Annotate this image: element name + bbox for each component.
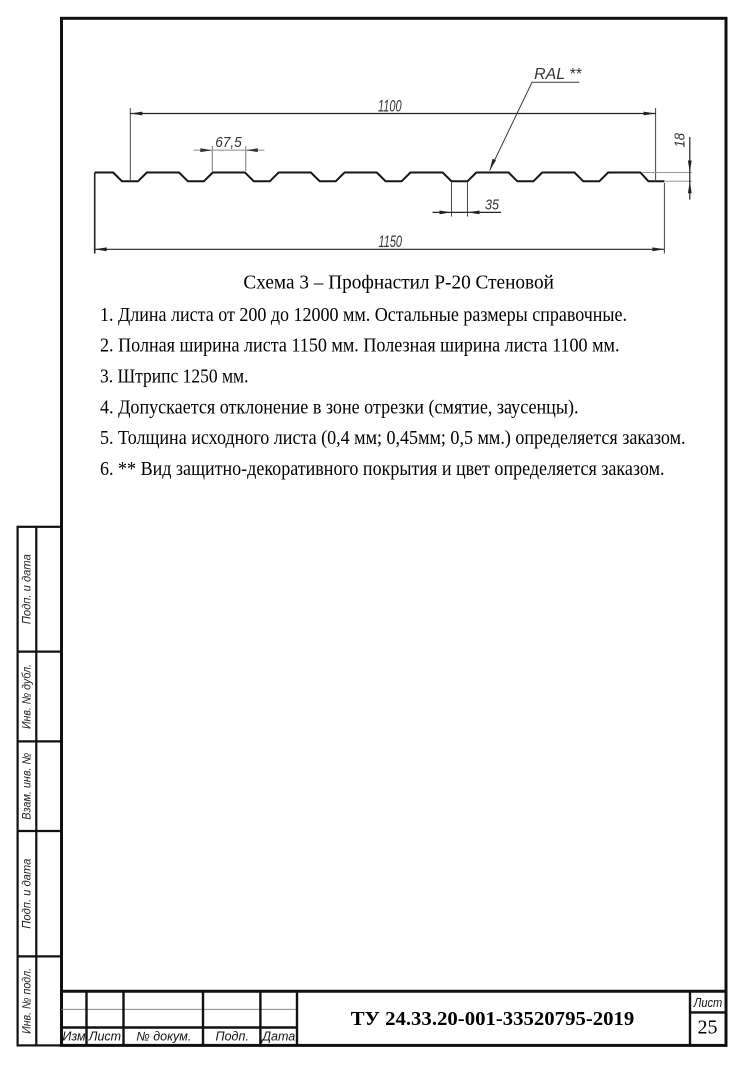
svg-text:3. Штрипс 1250 мм.: 3. Штрипс 1250 мм. xyxy=(100,366,249,388)
svg-text:RAL **: RAL ** xyxy=(534,66,582,83)
svg-text:67,5: 67,5 xyxy=(215,134,242,151)
svg-text:Взам. инв. №: Взам. инв. № xyxy=(20,753,34,820)
svg-text:4. Допускается отклонение в зо: 4. Допускается отклонение в зоне отрезки… xyxy=(100,396,579,418)
svg-text:1100: 1100 xyxy=(378,97,402,115)
svg-text:1. Длина листа от 200 до 12000: 1. Длина листа от 200 до 12000 мм. Остал… xyxy=(100,304,627,326)
svg-text:Лист: Лист xyxy=(88,1029,121,1043)
svg-text:1150: 1150 xyxy=(379,233,403,251)
svg-text:2. Полная ширина листа 1150 мм: 2. Полная ширина листа 1150 мм. Полезная… xyxy=(100,335,620,357)
svg-text:Изм: Изм xyxy=(62,1029,86,1043)
svg-text:Подп. и дата: Подп. и дата xyxy=(20,554,34,624)
svg-text:Лист: Лист xyxy=(693,996,722,1010)
svg-text:6. ** Вид защитно-декоративног: 6. ** Вид защитно-декоративного покрытия… xyxy=(100,458,665,480)
svg-text:Подп. и дата: Подп. и дата xyxy=(20,858,34,928)
svg-text:Схема 3 – Профнастил Р-20 Стен: Схема 3 – Профнастил Р-20 Стеновой xyxy=(243,271,554,293)
svg-text:5. Толщина исходного листа (0,: 5. Толщина исходного листа (0,4 мм; 0,45… xyxy=(100,427,686,449)
svg-text:Инв. № дубл.: Инв. № дубл. xyxy=(20,664,34,729)
svg-text:Дата: Дата xyxy=(260,1029,295,1043)
svg-text:ТУ 24.33.20-001-33520795-2019: ТУ 24.33.20-001-33520795-2019 xyxy=(351,1008,635,1030)
svg-text:Подп.: Подп. xyxy=(216,1029,249,1043)
svg-text:№ докум.: № докум. xyxy=(136,1029,191,1043)
svg-text:Инв. № подл.: Инв. № подл. xyxy=(20,968,34,1034)
svg-text:35: 35 xyxy=(485,197,500,214)
svg-text:25: 25 xyxy=(698,1016,718,1038)
svg-text:18: 18 xyxy=(672,132,689,147)
